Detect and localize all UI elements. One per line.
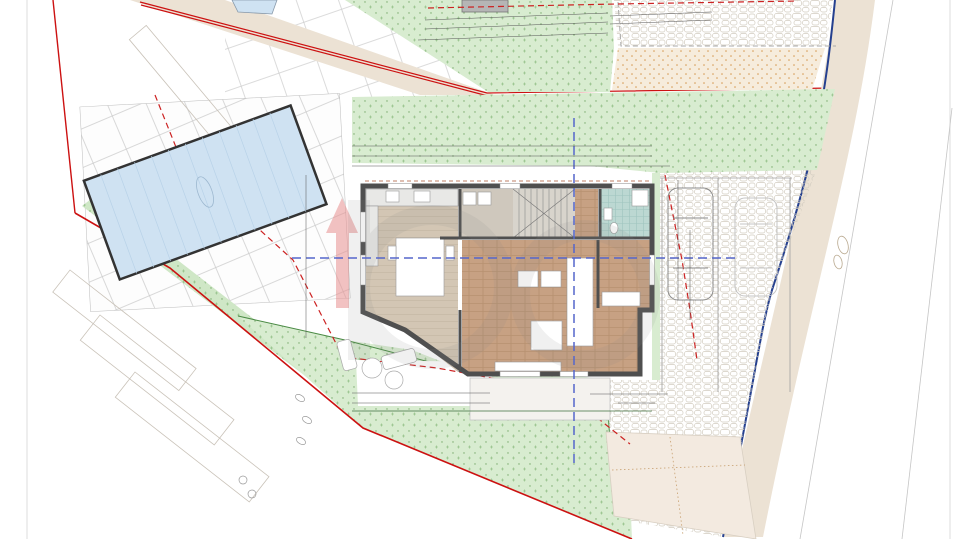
- site-plan-drawing: [0, 0, 960, 539]
- neighbor-building-blue: [232, 0, 277, 14]
- site-plan-page: [0, 0, 960, 539]
- gravel-strip-top: [612, 48, 825, 90]
- cobble-area-top: [614, 0, 833, 46]
- house-terrace: [470, 378, 610, 420]
